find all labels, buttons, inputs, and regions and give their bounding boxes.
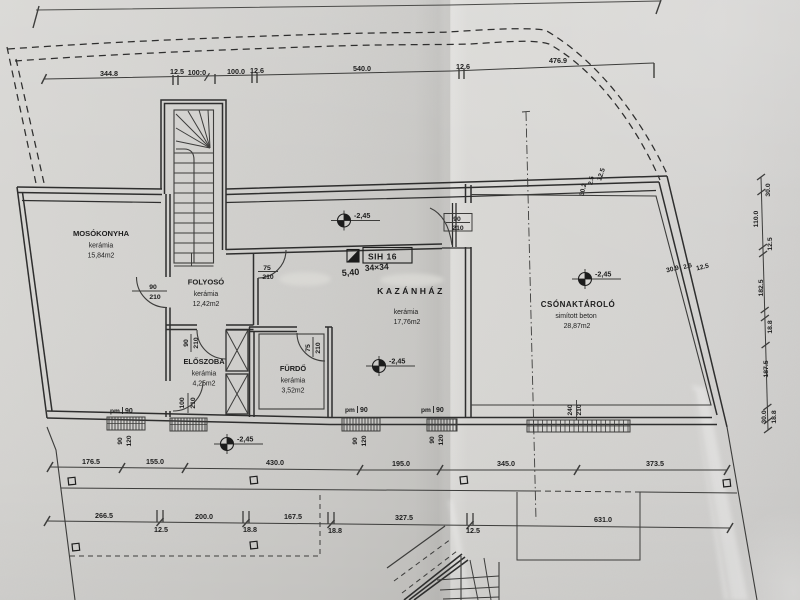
svg-text:100.0: 100.0 <box>227 67 245 76</box>
svg-text:90: 90 <box>149 284 157 291</box>
svg-text:30.0: 30.0 <box>765 183 772 196</box>
svg-text:120: 120 <box>438 434 445 445</box>
svg-text:90: 90 <box>352 437 359 445</box>
svg-text:120: 120 <box>126 435 133 446</box>
svg-text:12,42m2: 12,42m2 <box>193 301 220 308</box>
svg-text:155.0: 155.0 <box>146 457 164 466</box>
svg-text:FÜRDŐ: FÜRDŐ <box>280 364 307 373</box>
svg-text:210: 210 <box>149 294 161 301</box>
svg-text:90: 90 <box>453 216 461 223</box>
svg-text:90: 90 <box>117 437 124 445</box>
svg-text:kerámia: kerámia <box>394 309 419 316</box>
svg-text:210: 210 <box>452 225 464 232</box>
svg-text:373.5: 373.5 <box>646 459 664 468</box>
svg-text:187.5: 187.5 <box>763 360 770 377</box>
svg-text:12.6: 12.6 <box>456 62 470 71</box>
svg-text:120: 120 <box>361 435 368 446</box>
svg-text:18.8: 18.8 <box>771 410 778 423</box>
svg-text:182.5: 182.5 <box>758 279 765 296</box>
svg-text:176.5: 176.5 <box>82 457 100 466</box>
svg-text:345.0: 345.0 <box>497 459 515 468</box>
svg-text:90: 90 <box>360 407 368 414</box>
svg-text:110.0: 110.0 <box>753 210 760 227</box>
svg-text:90: 90 <box>429 436 436 444</box>
svg-text:18.8: 18.8 <box>243 525 257 534</box>
svg-text:simított beton: simított beton <box>555 313 597 320</box>
svg-text:SIH 16: SIH 16 <box>368 252 397 262</box>
svg-text:12.6: 12.6 <box>250 66 264 75</box>
svg-text:MOSÓKONYHA: MOSÓKONYHA <box>73 229 130 238</box>
svg-text:430.0: 430.0 <box>266 458 284 467</box>
svg-text:CSÓNAKTÁROLÓ: CSÓNAKTÁROLÓ <box>541 300 615 309</box>
svg-text:12.5: 12.5 <box>466 526 480 535</box>
svg-text:18.8: 18.8 <box>328 526 342 535</box>
svg-text:195.0: 195.0 <box>392 459 410 468</box>
svg-text:pm: pm <box>110 408 120 415</box>
svg-text:KAZÁNHÁZ: KAZÁNHÁZ <box>377 286 445 296</box>
svg-text:-2,45: -2,45 <box>389 357 405 366</box>
svg-text:3,52m2: 3,52m2 <box>282 388 305 395</box>
svg-text:631.0: 631.0 <box>594 515 612 524</box>
svg-text:100:0: 100:0 <box>188 68 206 77</box>
svg-text:FOLYOSÓ: FOLYOSÓ <box>188 278 225 287</box>
svg-text:327.5: 327.5 <box>395 513 413 522</box>
svg-text:476.9: 476.9 <box>549 56 567 65</box>
svg-text:pm: pm <box>345 407 355 414</box>
svg-text:266.5: 266.5 <box>95 511 113 520</box>
svg-text:-2,45: -2,45 <box>354 211 370 220</box>
svg-text:28,87m2: 28,87m2 <box>564 323 591 330</box>
svg-text:pm: pm <box>421 407 431 414</box>
svg-text:-2,45: -2,45 <box>595 270 611 279</box>
svg-text:kerámia: kerámia <box>281 378 306 385</box>
svg-text:17,76m2: 17,76m2 <box>394 319 421 326</box>
svg-text:210: 210 <box>315 342 322 354</box>
svg-text:ELŐSZOBA: ELŐSZOBA <box>183 357 225 366</box>
svg-text:200.0: 200.0 <box>195 512 213 521</box>
svg-text:90: 90 <box>183 339 190 347</box>
svg-text:240: 240 <box>567 404 574 415</box>
svg-text:30.0: 30.0 <box>761 410 768 423</box>
svg-text:12.5: 12.5 <box>767 237 774 250</box>
svg-text:-2,45: -2,45 <box>237 435 253 444</box>
svg-text:100: 100 <box>179 397 186 409</box>
svg-text:210: 210 <box>576 404 583 415</box>
svg-text:90: 90 <box>125 408 133 415</box>
svg-text:kerámia: kerámia <box>89 243 114 250</box>
svg-text:75: 75 <box>305 344 312 352</box>
svg-text:210: 210 <box>193 337 200 349</box>
svg-text:15,84m2: 15,84m2 <box>88 253 115 260</box>
svg-text:210: 210 <box>262 274 274 281</box>
svg-text:4,25m2: 4,25m2 <box>193 381 216 388</box>
svg-text:167.5: 167.5 <box>284 512 302 521</box>
svg-text:12.5: 12.5 <box>170 67 184 76</box>
svg-text:kerámia: kerámia <box>194 291 219 298</box>
svg-text:75: 75 <box>263 265 271 272</box>
svg-text:344.8: 344.8 <box>100 69 118 78</box>
svg-text:210: 210 <box>190 397 197 409</box>
svg-text:18.8: 18.8 <box>767 320 774 333</box>
svg-text:12.5: 12.5 <box>154 525 168 534</box>
svg-text:540.0: 540.0 <box>353 64 371 73</box>
svg-text:34×34: 34×34 <box>364 261 389 273</box>
svg-text:5,40: 5,40 <box>341 267 359 278</box>
svg-text:kerámia: kerámia <box>192 371 217 378</box>
svg-text:90: 90 <box>436 407 444 414</box>
